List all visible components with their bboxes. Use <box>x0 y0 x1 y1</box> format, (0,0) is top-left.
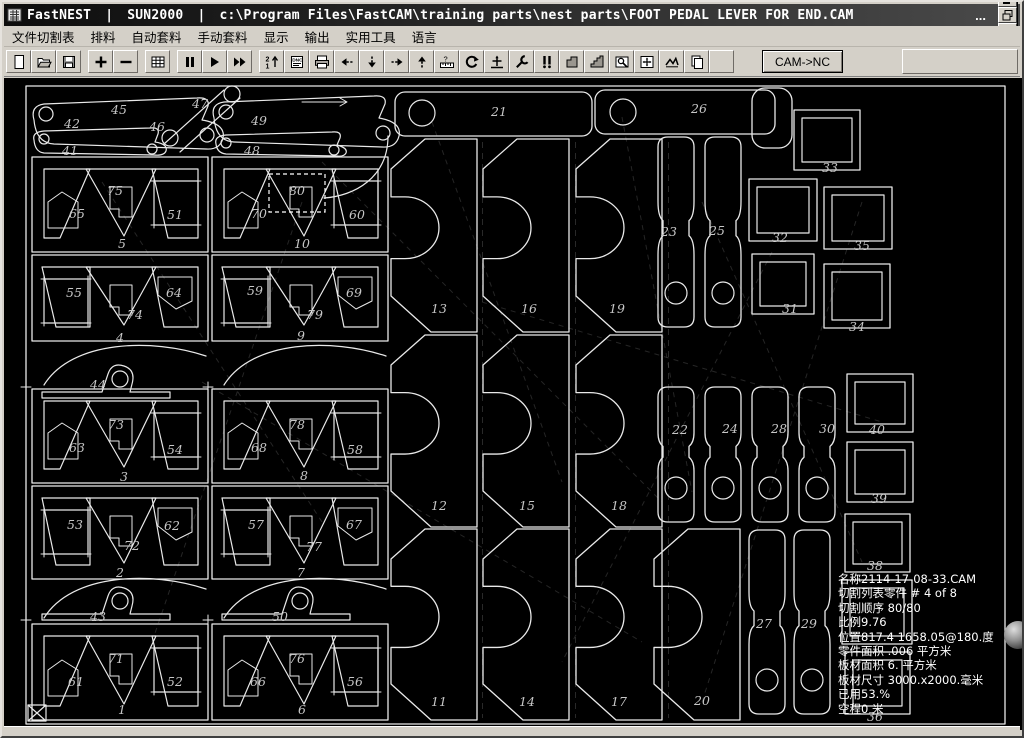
pause-button[interactable] <box>177 50 202 73</box>
part-label-11: 11 <box>431 694 447 709</box>
part-label-74: 74 <box>127 307 143 322</box>
part-label-66: 66 <box>250 674 266 689</box>
menu-item-7[interactable]: 实用工具 <box>338 25 404 48</box>
part-label-49: 49 <box>250 113 267 128</box>
copy-part-icon <box>689 54 705 70</box>
zoom-in-button[interactable] <box>88 50 113 73</box>
menu-bar: 文件切割表排料自动套料手动套料显示输出实用工具语言 <box>4 26 1020 47</box>
part-label-75: 75 <box>107 183 123 198</box>
part-label-80: 80 <box>289 183 305 198</box>
toolbar-panel <box>902 49 1018 74</box>
save-file-icon <box>61 54 77 70</box>
part-label-45: 45 <box>110 102 127 117</box>
part-label-63: 63 <box>69 440 85 455</box>
part-label-9: 9 <box>297 328 305 343</box>
part-label-5: 5 <box>118 236 126 251</box>
part-label-56: 56 <box>347 674 363 689</box>
menu-item-2[interactable]: 排料 <box>83 25 124 48</box>
status-line: 空程0 米 <box>838 702 1024 716</box>
open-file-icon <box>36 54 52 70</box>
title-bar[interactable]: FastNEST | SUN2000 | c:\Program Files\Fa… <box>4 4 1020 26</box>
move-right-icon <box>389 54 405 70</box>
part-label-39: 39 <box>871 491 887 506</box>
menu-item-4[interactable]: 手动套料 <box>190 25 256 48</box>
part-label-19: 19 <box>609 301 625 316</box>
part-label-21: 21 <box>490 104 507 119</box>
part-label-73: 73 <box>108 417 124 432</box>
part-label-64: 64 <box>166 285 182 300</box>
print-button[interactable] <box>309 50 334 73</box>
tools-icon <box>514 54 530 70</box>
part-label-16: 16 <box>521 301 537 316</box>
minimize-button[interactable] <box>998 0 1017 7</box>
zoom-in-icon <box>93 54 109 70</box>
part-label-43: 43 <box>89 609 106 624</box>
part-label-77: 77 <box>306 539 322 554</box>
part-label-54: 54 <box>167 442 183 457</box>
part-label-2: 2 <box>115 565 124 580</box>
datum-cross-button[interactable] <box>484 50 509 73</box>
menu-item-6[interactable]: 输出 <box>297 25 338 48</box>
step-profile-button[interactable] <box>584 50 609 73</box>
status-line: 比例9.76 <box>838 615 1024 629</box>
save-file-button[interactable] <box>56 50 81 73</box>
cut-sequence-icon: 21 <box>264 54 280 70</box>
part-label-48: 48 <box>243 143 260 158</box>
part-label-17: 17 <box>611 694 627 709</box>
system-title: SUN2000 <box>127 8 183 23</box>
grid-icon <box>150 54 166 70</box>
part-label-46: 46 <box>148 119 165 134</box>
move-down-icon <box>364 54 380 70</box>
part-label-44: 44 <box>89 377 106 392</box>
run-icon <box>207 54 223 70</box>
nest-canvas[interactable]: 1234567891011121314151617181920212223242… <box>4 78 1024 730</box>
new-file-button[interactable] <box>6 50 31 73</box>
part-label-27: 27 <box>755 616 772 631</box>
nest-status-readout: 名称2114-17-08-33.CAM切割列表零件 # 4 of 8切割顺序 8… <box>838 572 1024 716</box>
rotate-button[interactable] <box>459 50 484 73</box>
corner-profile-button[interactable] <box>559 50 584 73</box>
pause-icon <box>182 54 198 70</box>
part-label-52: 52 <box>167 674 183 689</box>
part-label-25: 25 <box>708 223 725 238</box>
svg-text:1: 1 <box>265 63 269 70</box>
part-label-20: 20 <box>693 693 710 708</box>
part-label-1: 1 <box>118 702 126 717</box>
part-label-55: 55 <box>66 285 82 300</box>
part-label-33: 33 <box>822 160 838 175</box>
status-line: 板材面积 6. 平方米 <box>838 658 1024 672</box>
part-label-53: 53 <box>67 517 83 532</box>
status-line: 名称2114-17-08-33.CAM <box>838 572 1024 586</box>
part-label-24: 24 <box>721 421 738 436</box>
blank-icon <box>714 54 730 70</box>
part-label-71: 71 <box>108 651 124 666</box>
part-label-6: 6 <box>298 702 306 717</box>
copy-part-button[interactable] <box>684 50 709 73</box>
open-file-button[interactable] <box>31 50 56 73</box>
part-label-60: 60 <box>349 207 365 222</box>
part-label-8: 8 <box>300 468 308 483</box>
fastnest-window: FastNEST | SUN2000 | c:\Program Files\Fa… <box>0 0 1024 738</box>
fit-view-button[interactable] <box>634 50 659 73</box>
part-label-70: 70 <box>251 206 267 221</box>
datum-cross-icon <box>489 54 505 70</box>
window-bottom-edge <box>4 726 1020 734</box>
collision-check-icon <box>664 54 680 70</box>
tools-button[interactable] <box>509 50 534 73</box>
part-label-65: 65 <box>69 206 85 221</box>
part-label-62: 62 <box>164 518 180 533</box>
pin-parts-button[interactable] <box>534 50 559 73</box>
part-label-61: 61 <box>68 674 84 689</box>
part-label-22: 22 <box>671 422 688 437</box>
part-label-13: 13 <box>431 301 447 316</box>
status-line: 位置817.4 1658.05@180.度 <box>838 630 1024 644</box>
status-line: 切割顺序 80/80 <box>838 601 1024 615</box>
title-separator: | <box>105 8 113 23</box>
move-left-button[interactable] <box>334 50 359 73</box>
part-label-12: 12 <box>431 498 447 513</box>
part-label-57: 57 <box>248 517 264 532</box>
grid-button[interactable] <box>145 50 170 73</box>
title-separator: | <box>197 8 205 23</box>
zoom-window-icon <box>614 54 630 70</box>
part-label-78: 78 <box>289 417 305 432</box>
part-label-41: 41 <box>61 143 78 158</box>
part-label-30: 30 <box>819 421 835 436</box>
part-label-7: 7 <box>297 565 305 580</box>
part-label-31: 31 <box>782 301 798 316</box>
collision-check-button[interactable] <box>659 50 684 73</box>
part-label-42: 42 <box>63 116 80 131</box>
part-label-35: 35 <box>854 238 870 253</box>
zoom-out-button[interactable] <box>113 50 138 73</box>
move-left-icon <box>339 54 355 70</box>
status-line: 切割列表零件 # 4 of 8 <box>838 586 1024 600</box>
move-down-button[interactable] <box>359 50 384 73</box>
part-label-28: 28 <box>770 421 787 436</box>
title-overflow: ... <box>975 8 986 23</box>
zoom-out-icon <box>118 54 134 70</box>
fast-run-button[interactable] <box>227 50 252 73</box>
nc-code-button[interactable]: DNC <box>284 50 309 73</box>
part-label-68: 68 <box>251 440 267 455</box>
part-label-4: 4 <box>115 330 124 345</box>
part-label-38: 38 <box>867 558 883 573</box>
rotate-icon <box>464 54 480 70</box>
part-label-47: 47 <box>191 96 208 111</box>
part-label-34: 34 <box>849 319 865 334</box>
part-label-51: 51 <box>167 207 183 222</box>
part-label-14: 14 <box>519 694 535 709</box>
menu-item-3[interactable]: 自动套料 <box>124 25 190 48</box>
part-label-40: 40 <box>868 422 885 437</box>
measure-icon: ? <box>439 54 455 70</box>
svg-text:2: 2 <box>265 56 269 63</box>
part-label-23: 23 <box>660 224 677 239</box>
part-label-32: 32 <box>772 230 788 245</box>
part-label-50: 50 <box>272 609 288 624</box>
part-label-59: 59 <box>247 283 263 298</box>
pin-parts-icon <box>539 54 555 70</box>
part-label-76: 76 <box>289 651 305 666</box>
blank-button[interactable] <box>709 50 734 73</box>
fit-view-icon <box>639 54 655 70</box>
part-label-58: 58 <box>347 442 363 457</box>
new-file-icon <box>11 54 27 70</box>
part-label-72: 72 <box>124 538 140 553</box>
measure-button[interactable]: ? <box>434 50 459 73</box>
fast-run-icon <box>232 54 248 70</box>
restore-button[interactable] <box>998 7 1017 23</box>
toolbar: 21DNC?CAM->NC <box>4 47 1020 77</box>
menu-item-1[interactable]: 文件切割表 <box>4 25 83 48</box>
part-label-29: 29 <box>800 616 817 631</box>
part-label-10: 10 <box>294 236 310 251</box>
app-title: FastNEST <box>27 8 91 23</box>
status-line: 板材尺寸 3000.x2000.毫米 <box>838 673 1024 687</box>
cam-to-nc-button[interactable]: CAM->NC <box>762 50 843 73</box>
svg-text:DNC: DNC <box>292 57 303 63</box>
app-logo-icon <box>7 7 23 23</box>
zoom-window-button[interactable] <box>609 50 634 73</box>
part-label-18: 18 <box>611 498 627 513</box>
status-line: 已用53.% <box>838 687 1024 701</box>
part-label-3: 3 <box>120 469 128 484</box>
svg-text:?: ? <box>443 54 447 63</box>
move-up-button[interactable] <box>409 50 434 73</box>
move-right-button[interactable] <box>384 50 409 73</box>
part-label-15: 15 <box>519 498 535 513</box>
part-label-69: 69 <box>346 285 362 300</box>
menu-item-5[interactable]: 显示 <box>256 25 297 48</box>
file-path-title: c:\Program Files\FastCAM\training parts\… <box>219 8 853 23</box>
part-label-26: 26 <box>690 101 707 116</box>
part-label-67: 67 <box>346 517 362 532</box>
cut-sequence-button[interactable]: 21 <box>259 50 284 73</box>
step-profile-icon <box>589 54 605 70</box>
part-label-79: 79 <box>307 307 323 322</box>
move-up-icon <box>414 54 430 70</box>
print-icon <box>314 54 330 70</box>
corner-profile-icon <box>564 54 580 70</box>
nc-code-icon: DNC <box>289 54 305 70</box>
menu-item-8[interactable]: 语言 <box>404 25 445 48</box>
status-line: 零件面积 .006 平方米 <box>838 644 1024 658</box>
run-button[interactable] <box>202 50 227 73</box>
